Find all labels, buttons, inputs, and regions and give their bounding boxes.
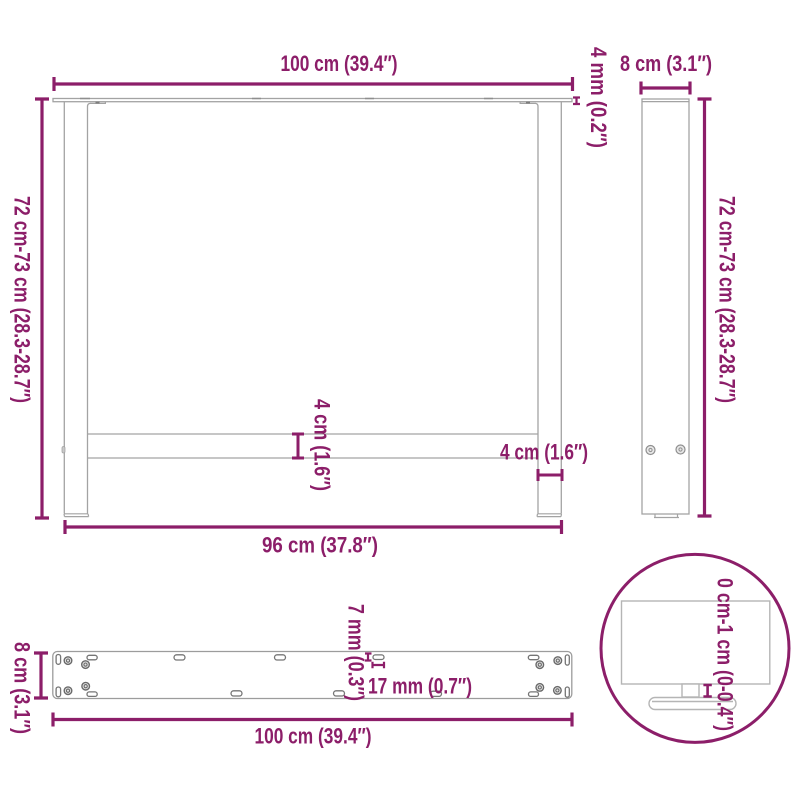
svg-text:72 cm-73 cm (28.3-28.7″): 72 cm-73 cm (28.3-28.7″) — [10, 196, 35, 403]
svg-text:4 cm (1.6″): 4 cm (1.6″) — [500, 440, 588, 465]
svg-text:0 cm-1 cm (0-0.4″): 0 cm-1 cm (0-0.4″) — [713, 578, 738, 731]
svg-text:72 cm-73 cm (28.3-28.7″): 72 cm-73 cm (28.3-28.7″) — [715, 196, 740, 403]
svg-text:100 cm (39.4″): 100 cm (39.4″) — [281, 51, 398, 76]
svg-text:8 cm (3.1″): 8 cm (3.1″) — [10, 642, 35, 734]
svg-text:100 cm (39.4″): 100 cm (39.4″) — [255, 724, 372, 749]
svg-text:7 mm (0.3″): 7 mm (0.3″) — [344, 604, 369, 701]
svg-text:4 cm (1.6″): 4 cm (1.6″) — [310, 399, 335, 491]
svg-text:4 mm (0.2″): 4 mm (0.2″) — [586, 47, 611, 148]
svg-text:17 mm (0.7″): 17 mm (0.7″) — [368, 674, 472, 699]
svg-text:8 cm (3.1″): 8 cm (3.1″) — [620, 51, 712, 76]
svg-text:96 cm (37.8″): 96 cm (37.8″) — [262, 533, 378, 558]
